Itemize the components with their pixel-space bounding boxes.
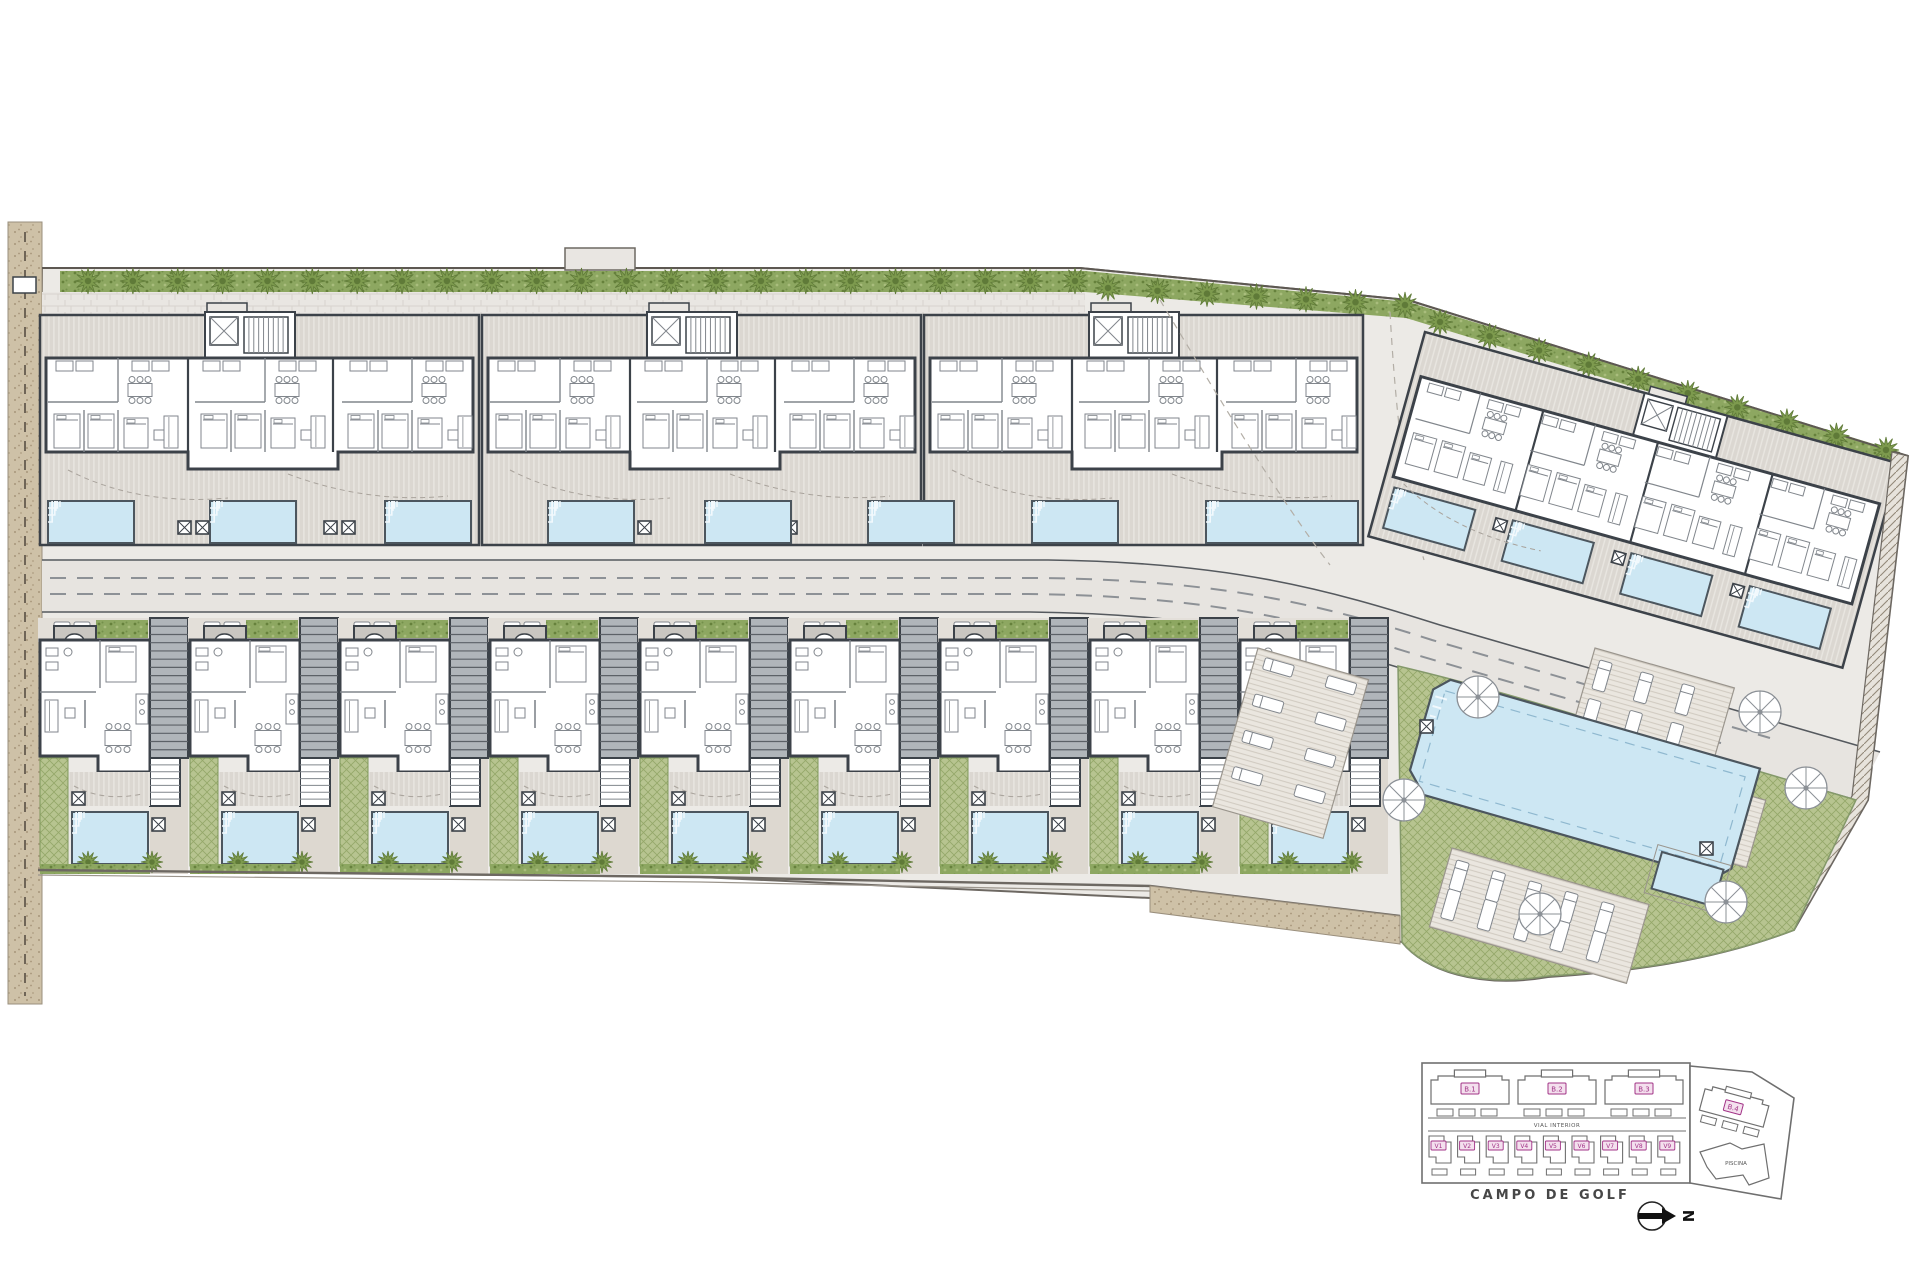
stair-core (1089, 303, 1179, 359)
garden-hedge (1090, 758, 1118, 866)
bed-icon (1232, 414, 1258, 448)
planter-icon (1352, 818, 1365, 831)
villa-V8 (1088, 618, 1238, 874)
stairs-icon (686, 317, 730, 353)
planter-icon (822, 792, 835, 805)
north-arrow-icon (1638, 1202, 1676, 1230)
villas-row (38, 618, 1388, 874)
garden-hedge (490, 758, 518, 866)
planter-icon (302, 818, 315, 831)
planter-icon (1493, 518, 1508, 533)
planter-icon (1420, 720, 1433, 733)
unit-pool (548, 501, 634, 543)
left-sand-road (8, 222, 42, 1004)
keyplan-villa-label: V8 (1635, 1143, 1643, 1150)
garden-hedge (640, 864, 750, 874)
villa-V1 (38, 618, 188, 874)
keyplan-villa-label: V4 (1520, 1143, 1528, 1150)
planter-icon (72, 792, 85, 805)
planter-icon (972, 792, 985, 805)
sofa-icon (195, 700, 208, 732)
sofa-icon (945, 700, 958, 732)
planter-icon (342, 521, 355, 534)
bed-icon (706, 646, 736, 682)
key-plan: B.1B.2B.3VIAL INTERIORV1V2V3V4V5V6V7V8V9… (1422, 1063, 1794, 1230)
stairs-icon (244, 317, 288, 353)
keyplan-block-label: B.2 (1551, 1086, 1562, 1094)
unit-pool (1206, 501, 1358, 543)
bed-icon (256, 646, 286, 682)
keyplan-villa-label: V3 (1492, 1143, 1500, 1150)
unit-pool (48, 501, 134, 543)
unit-pool (868, 501, 954, 543)
keyplan-villa-label: V7 (1606, 1143, 1614, 1150)
garden-hedge (190, 758, 218, 866)
bed-icon (1155, 418, 1179, 448)
garden-hedge (790, 864, 900, 874)
sofa-icon (753, 416, 767, 448)
bed-icon (860, 418, 884, 448)
planter-icon (902, 818, 915, 831)
sofa-icon (345, 700, 358, 732)
sofa-icon (458, 416, 472, 448)
utility-box (13, 277, 36, 293)
parasol-icon (1705, 881, 1747, 923)
garden-hedge (1090, 864, 1200, 874)
garden-hedge (40, 758, 68, 866)
planter-icon (1611, 551, 1626, 566)
sofa-icon (606, 416, 620, 448)
bed-icon (348, 414, 374, 448)
parasol-icon (1739, 691, 1781, 733)
garden-hedge (940, 864, 1050, 874)
planter-icon (1122, 792, 1135, 805)
bed-icon (1008, 418, 1032, 448)
sofa-icon (900, 416, 914, 448)
site-plan-drawing: B.1B.2B.3VIAL INTERIORV1V2V3V4V5V6V7V8V9… (0, 0, 1920, 1280)
planter-icon (602, 818, 615, 831)
villa-V7 (938, 618, 1088, 874)
planter-icon (752, 818, 765, 831)
bed-icon (1119, 414, 1145, 448)
unit-pool (210, 501, 296, 543)
planter-icon (1202, 818, 1215, 831)
planter-icon (452, 818, 465, 831)
parasol-icon (1785, 767, 1827, 809)
golf-course-label: CAMPO DE GOLF (1470, 1188, 1630, 1203)
planter-icon (1052, 818, 1065, 831)
unit-pool (385, 501, 471, 543)
sofa-icon (1048, 416, 1062, 448)
villa-V6 (788, 618, 938, 874)
bed-icon (235, 414, 261, 448)
stair-core (647, 303, 737, 359)
garden-hedge (640, 758, 668, 866)
bed-icon (1006, 646, 1036, 682)
bed-icon (382, 414, 408, 448)
planter-icon (1700, 842, 1713, 855)
planter-icon (672, 792, 685, 805)
bed-icon (496, 414, 522, 448)
path-entry (565, 248, 635, 270)
bed-icon (124, 418, 148, 448)
bed-icon (271, 418, 295, 448)
keyplan-villa-label: V6 (1578, 1143, 1586, 1150)
bed-icon (972, 414, 998, 448)
villa-V4 (488, 618, 638, 874)
bed-icon (677, 414, 703, 448)
compass-letter: N (1679, 1210, 1697, 1223)
planter-icon (324, 521, 337, 534)
bed-icon (530, 414, 556, 448)
garden-hedge (490, 864, 600, 874)
sofa-icon (1095, 700, 1108, 732)
bed-icon (418, 418, 442, 448)
sofa-icon (164, 416, 178, 448)
sofa-icon (1342, 416, 1356, 448)
bed-icon (88, 414, 114, 448)
bed-icon (1302, 418, 1326, 448)
bed-icon (643, 414, 669, 448)
keyplan-villa-label: V9 (1663, 1143, 1671, 1150)
parasol-icon (1457, 676, 1499, 718)
keyplan-block-label: B.1 (1464, 1086, 1475, 1094)
garden-hedge (790, 758, 818, 866)
villa-V2 (188, 618, 338, 874)
site-plan-page: B.1B.2B.3VIAL INTERIORV1V2V3V4V5V6V7V8V9… (0, 0, 1920, 1280)
unit-pool (1032, 501, 1118, 543)
bed-icon (106, 646, 136, 682)
garden-hedge (1240, 864, 1350, 874)
parasol-icon (1383, 779, 1425, 821)
planter-icon (1730, 583, 1745, 598)
bed-icon (1156, 646, 1186, 682)
sofa-icon (1195, 416, 1209, 448)
bed-icon (406, 646, 436, 682)
stairs-icon (1128, 317, 1172, 353)
bed-icon (824, 414, 850, 448)
keyplan-pool-area-label: PISCINA (1725, 1161, 1747, 1167)
keyplan-villa-label: V1 (1435, 1143, 1443, 1150)
planter-icon (196, 521, 209, 534)
bed-icon (1266, 414, 1292, 448)
garden-hedge (340, 758, 368, 866)
planter-icon (522, 792, 535, 805)
sofa-icon (311, 416, 325, 448)
sofa-icon (45, 700, 58, 732)
keyplan-block-label: B.3 (1638, 1086, 1649, 1094)
keyplan-villa-label: V5 (1549, 1143, 1557, 1150)
sofa-icon (795, 700, 808, 732)
planter-icon (222, 792, 235, 805)
parasol-icon (1519, 893, 1561, 935)
bed-icon (713, 418, 737, 448)
sofa-icon (645, 700, 658, 732)
planter-icon (178, 521, 191, 534)
bed-icon (566, 418, 590, 448)
bed-icon (790, 414, 816, 448)
unit-pool (705, 501, 791, 543)
planter-icon (372, 792, 385, 805)
garden-hedge (940, 758, 968, 866)
villa-V5 (638, 618, 788, 874)
bed-icon (201, 414, 227, 448)
planter-icon (638, 521, 651, 534)
bed-icon (938, 414, 964, 448)
bed-icon (1085, 414, 1111, 448)
bed-icon (856, 646, 886, 682)
keyplan-road-label: VIAL INTERIOR (1534, 1123, 1581, 1129)
sofa-icon (495, 700, 508, 732)
planter-icon (152, 818, 165, 831)
bed-icon (54, 414, 80, 448)
stair-core (205, 303, 295, 359)
villa-V3 (338, 618, 488, 874)
keyplan-villa-label: V2 (1463, 1143, 1471, 1150)
bed-icon (556, 646, 586, 682)
